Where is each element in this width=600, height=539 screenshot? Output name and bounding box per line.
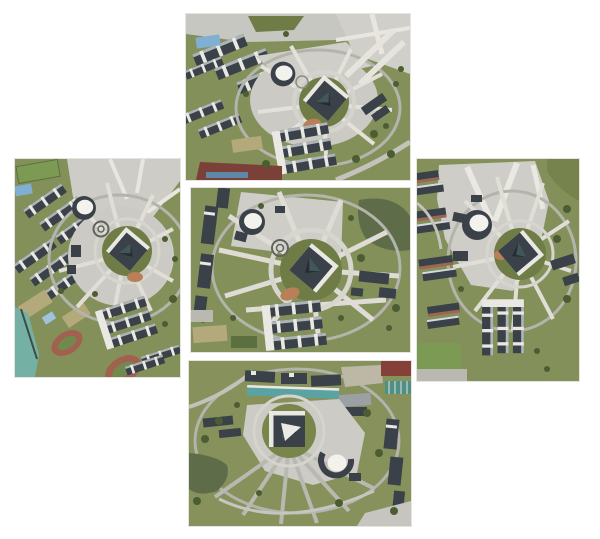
- aerial-photo-bottom-graphic: [189, 361, 411, 526]
- red-roof-building: [381, 361, 411, 376]
- dorm-complex-south: [482, 299, 524, 355]
- dome-building: [462, 210, 492, 240]
- aerial-photo-center: [191, 188, 410, 352]
- fields-bottom-left: [417, 343, 467, 381]
- teal-courts: [385, 381, 411, 394]
- dome-building: [72, 196, 96, 220]
- aerial-photo-center-graphic: [191, 188, 410, 352]
- dome-building: [239, 209, 265, 235]
- photo-grid: [0, 0, 600, 539]
- aerial-photo-bottom: [189, 361, 411, 526]
- dome-building: [271, 62, 296, 87]
- aerial-photo-top: [186, 14, 410, 180]
- dorm-complex-south: [261, 299, 327, 351]
- aerial-photo-left: [15, 159, 180, 377]
- aerial-photo-right-graphic: [417, 159, 579, 381]
- aerial-photo-left-graphic: [15, 159, 180, 377]
- aerial-photo-top-graphic: [186, 14, 410, 180]
- aerial-photo-right: [417, 159, 579, 381]
